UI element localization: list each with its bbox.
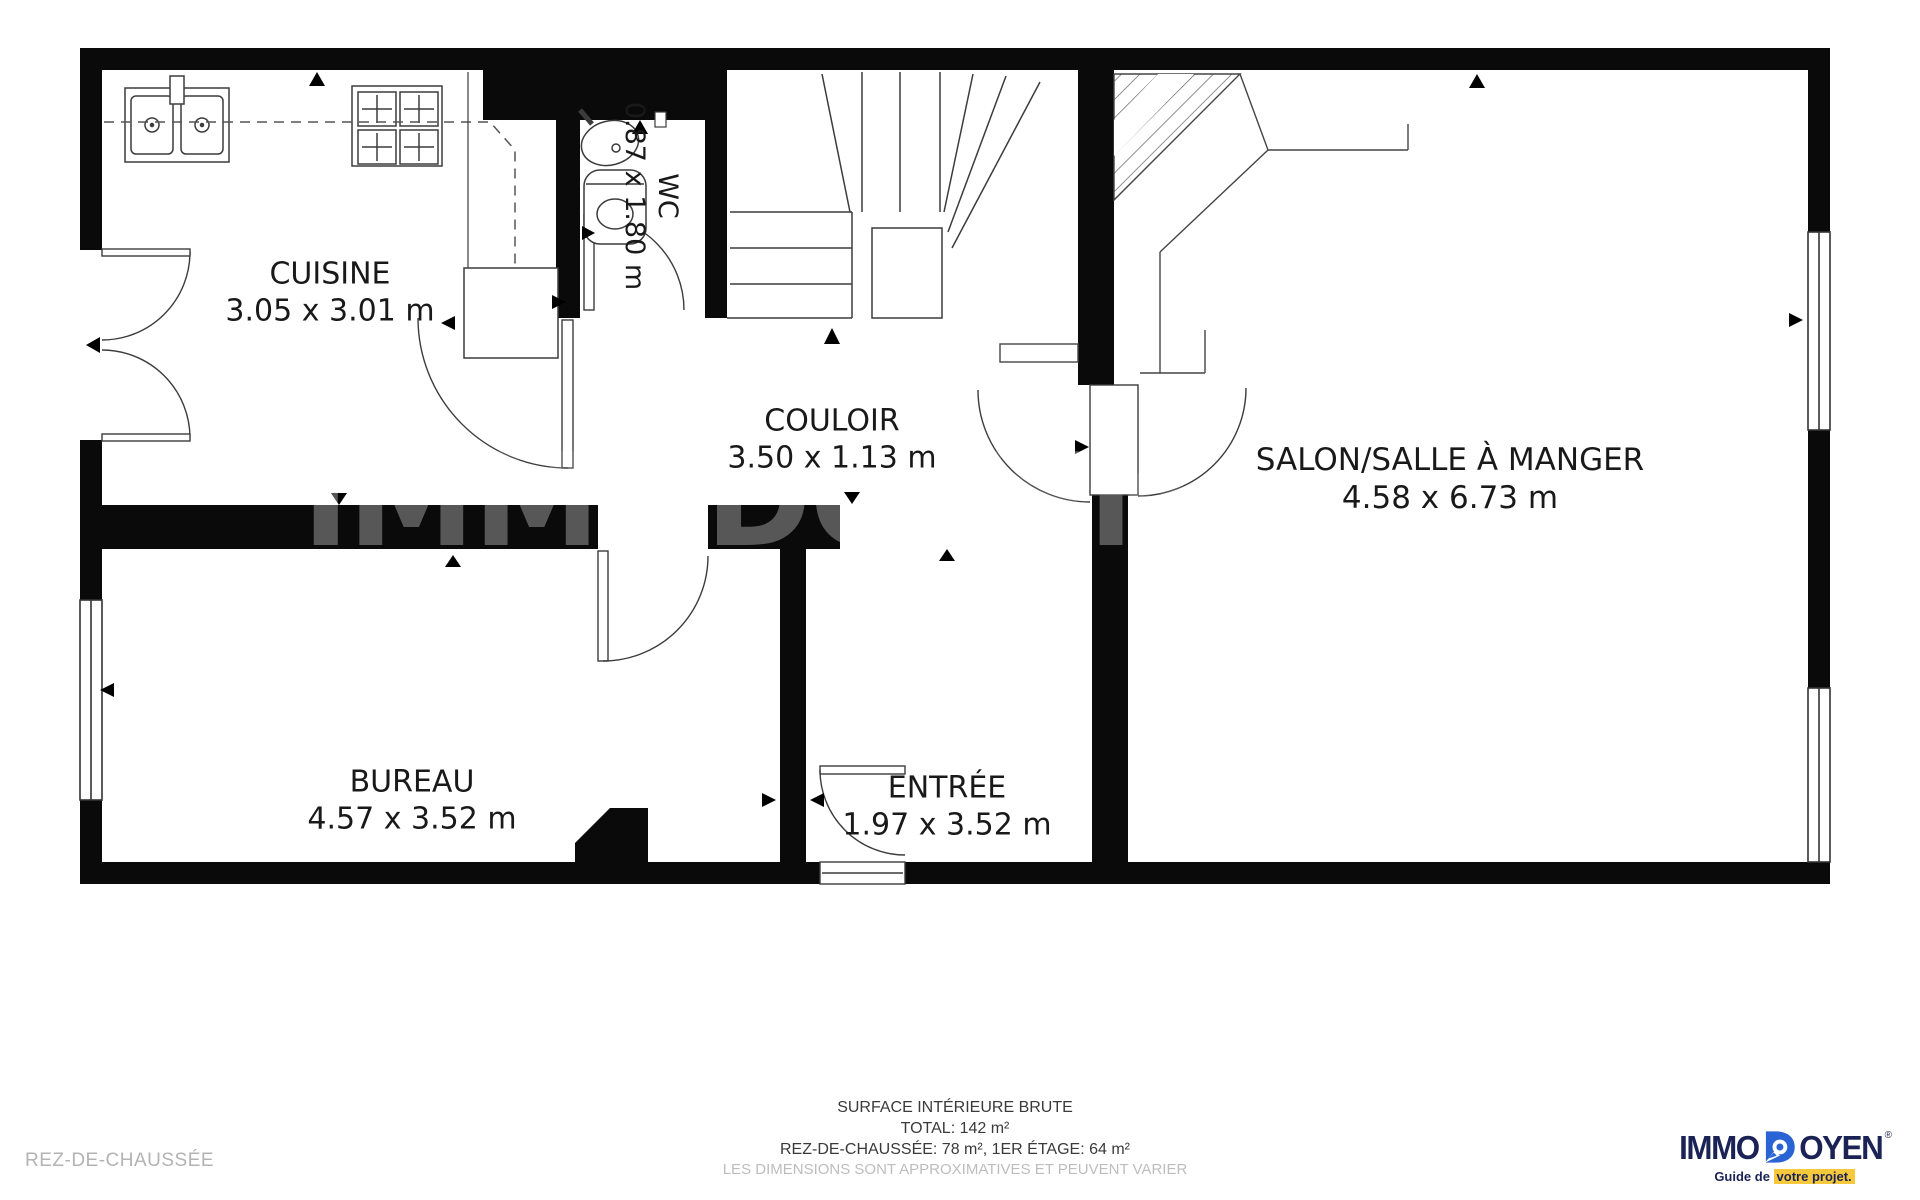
door-bureau: [598, 551, 708, 661]
wall-bureau-top-right: [708, 505, 840, 549]
room-dimensions: 3.50 x 1.13 m: [727, 440, 936, 477]
logo-tagline: Guide de votre projet.: [1677, 1169, 1892, 1184]
kitchen-sink-icon: [125, 76, 229, 162]
window-salon-right-top: [1808, 232, 1830, 430]
under-stair-area: [1000, 74, 1408, 373]
chimney-notch: [575, 808, 648, 884]
tagline-prefix: Guide de: [1714, 1169, 1773, 1184]
wall-wc-stairs: [705, 92, 727, 318]
floor-name-label: REZ-DE-CHAUSSÉE: [25, 1150, 214, 1172]
room-name: CUISINE: [225, 256, 434, 293]
tagline-highlight: votre projet.: [1774, 1169, 1855, 1184]
registered-mark: ®: [1885, 1130, 1892, 1141]
room-label-wc: WC 0.87 x 1.80 m: [617, 102, 683, 290]
stair-newel: [872, 228, 942, 318]
door-salon: [978, 385, 1246, 502]
logo-text-oyen: OYEN: [1799, 1129, 1882, 1167]
wall-bureau-entree: [780, 549, 806, 862]
room-label-couloir: COULOIR 3.50 x 1.13 m: [727, 403, 936, 476]
french-door-cuisine: [102, 249, 190, 441]
wall-bureau-top-left: [102, 505, 598, 549]
room-label-cuisine: CUISINE 3.05 x 3.01 m: [225, 256, 434, 329]
wall-salon-lower: [1092, 495, 1128, 862]
stair-railing: [1000, 344, 1078, 362]
room-name: BUREAU: [307, 764, 516, 801]
stair-direction-arrow: [824, 328, 840, 344]
room-name: ENTRÉE: [842, 770, 1051, 807]
wall-salon-upper: [1078, 70, 1114, 385]
room-name: SALON/SALLE À MANGER: [1256, 442, 1644, 480]
wall-cuisine-wc: [556, 70, 580, 318]
room-dimensions: 4.58 x 6.73 m: [1256, 480, 1644, 518]
surface-per-floor: REZ-DE-CHAUSSÉE: 78 m², 1ER ÉTAGE: 64 m²: [723, 1139, 1188, 1160]
staircase: [727, 72, 1040, 344]
surface-disclaimer: LES DIMENSIONS SONT APPROXIMATIVES ET PE…: [723, 1160, 1188, 1180]
floorplan-drawing: [0, 0, 1920, 1200]
surface-total: TOTAL: 142 m²: [723, 1118, 1188, 1139]
room-name: COULOIR: [727, 403, 936, 440]
room-dimensions: 3.05 x 3.01 m: [225, 293, 434, 330]
kitchen-appliance: [464, 268, 558, 358]
window-bureau-left: [80, 600, 102, 800]
room-label-bureau: BUREAU 4.57 x 3.52 m: [307, 764, 516, 837]
room-dimensions: 0.87 x 1.80 m: [617, 102, 650, 290]
logo-brand-row: IMMO OYEN ®: [1677, 1128, 1892, 1168]
window-salon-right-bottom: [1808, 688, 1830, 862]
stove-icon: [352, 86, 442, 166]
room-dimensions: 1.97 x 3.52 m: [842, 807, 1051, 844]
surface-summary: SURFACE INTÉRIEURE BRUTE TOTAL: 142 m² R…: [723, 1097, 1188, 1180]
logo-text-immo: IMMO: [1679, 1129, 1759, 1167]
floorplan-page: IMMODOYEN CUISINE 3.05 x 3.01 m WC 0.87 …: [0, 0, 1920, 1200]
opening-markers: [86, 72, 1803, 807]
surface-title: SURFACE INTÉRIEURE BRUTE: [723, 1097, 1188, 1118]
room-dimensions: 4.57 x 3.52 m: [307, 801, 516, 838]
under-stair-hatch: [1114, 74, 1240, 200]
room-name: WC: [650, 102, 683, 290]
logo-d-arrow-icon: [1762, 1127, 1796, 1167]
room-label-salon: SALON/SALLE À MANGER 4.58 x 6.73 m: [1256, 442, 1644, 518]
room-label-entree: ENTRÉE 1.97 x 3.52 m: [842, 770, 1051, 843]
immodoyen-logo: IMMO OYEN ® Guide de votre projet.: [1677, 1128, 1892, 1184]
